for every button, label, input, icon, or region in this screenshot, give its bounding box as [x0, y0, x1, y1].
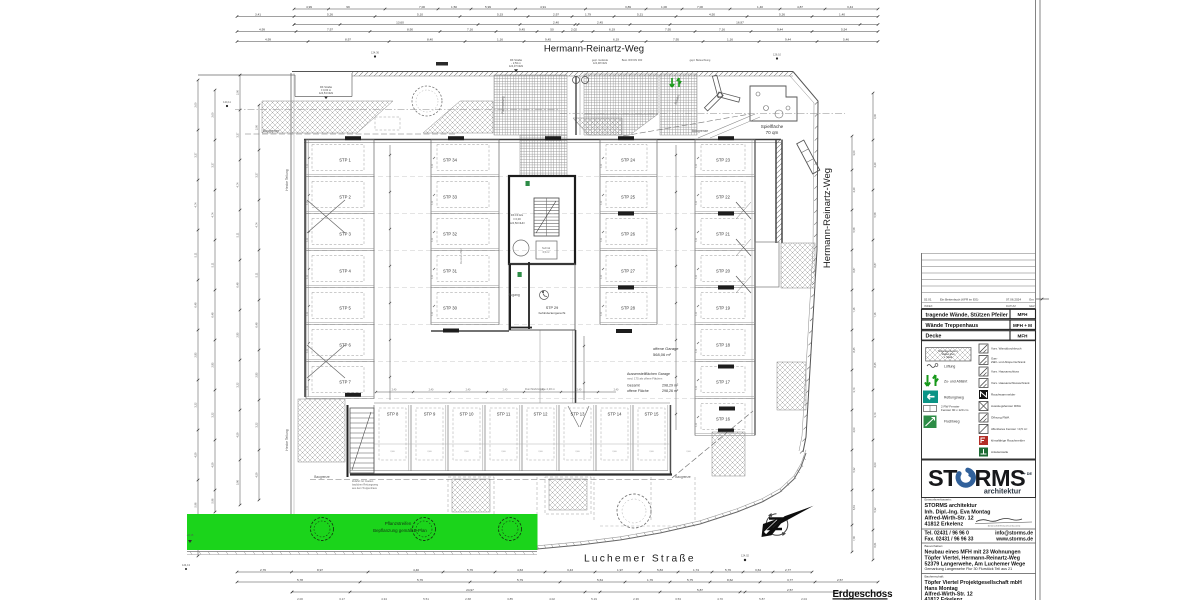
svg-text:Pflanzstreifen: Pflanzstreifen	[385, 521, 412, 526]
svg-text:2,45: 2,45	[597, 20, 603, 24]
svg-text:2,40: 2,40	[577, 389, 582, 392]
svg-text:DK FF EG: DK FF EG	[511, 213, 523, 217]
svg-text:3,41: 3,41	[255, 12, 261, 16]
svg-text:3,37: 3,37	[194, 152, 198, 158]
svg-text:STP 23: STP 23	[716, 158, 731, 163]
svg-text:9,44: 9,44	[777, 27, 783, 31]
svg-text:4,99: 4,99	[306, 5, 312, 9]
svg-text:6,48: 6,48	[255, 322, 259, 328]
svg-text:MFH + M: MFH + M	[1013, 323, 1032, 328]
svg-text:4,74: 4,74	[211, 212, 215, 218]
svg-text:STP 21: STP 21	[716, 232, 731, 237]
svg-text:2,76: 2,76	[260, 568, 266, 572]
svg-text:Gesamt: Gesamt	[627, 384, 640, 388]
svg-text:2,02: 2,02	[571, 27, 577, 31]
svg-text:STP 10: STP 10	[460, 412, 475, 417]
svg-text:Hecke Teilung: Hecke Teilung	[285, 169, 289, 190]
svg-text:STP 27: STP 27	[621, 269, 636, 274]
svg-text:tragende Wände, Stützen Pfeile: tragende Wände, Stützen Pfeiler	[926, 312, 1009, 318]
svg-text:Fluchtweg: Fluchtweg	[944, 420, 960, 424]
svg-text:5,96: 5,96	[236, 479, 240, 485]
svg-text:Hermann-Reinartz-Weg: Hermann-Reinartz-Weg	[822, 168, 833, 268]
svg-text:MFH: MFH	[1018, 334, 1029, 339]
svg-text:STP 33: STP 33	[443, 195, 458, 200]
svg-text:8,45: 8,45	[852, 347, 856, 353]
svg-text:STP 14: STP 14	[608, 412, 623, 417]
svg-text:8,97: 8,97	[345, 37, 351, 41]
svg-text:2,40: 2,40	[466, 389, 471, 392]
svg-text:Zugang: Zugang	[508, 293, 520, 297]
svg-text:2,40: 2,40	[429, 389, 434, 392]
svg-text:aus dem Treppenhaus: aus dem Treppenhaus	[352, 487, 378, 490]
svg-text:5,11: 5,11	[194, 252, 198, 257]
svg-text:5,96: 5,96	[211, 498, 215, 504]
svg-text:7,16: 7,16	[719, 27, 725, 31]
svg-text:STP 7: STP 7	[339, 380, 351, 385]
svg-text:Zähl- und Absperrschrank: Zähl- und Absperrschrank	[991, 360, 1026, 364]
svg-text:gepl. Beleuchtung: gepl. Beleuchtung	[690, 58, 711, 62]
svg-text:STP 26: STP 26	[621, 232, 636, 237]
svg-text:STP 1: STP 1	[339, 158, 351, 163]
svg-text:126,10: 126,10	[773, 53, 781, 57]
svg-text:Fax. 02431 / 96 96 33: Fax. 02431 / 96 96 33	[925, 536, 974, 542]
svg-text:2,57: 2,57	[787, 588, 793, 592]
svg-text:INDEX: INDEX	[924, 304, 933, 308]
svg-text:8,40: 8,40	[427, 37, 433, 41]
svg-text:STP 20: STP 20	[716, 269, 731, 274]
svg-text:5,58: 5,58	[852, 227, 856, 233]
svg-text:8,90: 8,90	[407, 27, 413, 31]
svg-text:STP 24: STP 24	[621, 158, 636, 163]
svg-text:3,74: 3,74	[852, 387, 856, 393]
svg-text:3,74: 3,74	[873, 412, 877, 418]
svg-text:Baugrenze: Baugrenze	[263, 129, 280, 133]
svg-text:STP 22: STP 22	[716, 195, 731, 200]
svg-text:Rauchwarnmelder: Rauchwarnmelder	[991, 393, 1015, 397]
svg-text:2,00: 2,00	[194, 102, 198, 108]
svg-text:2,85: 2,85	[236, 332, 240, 338]
svg-text:5,11: 5,11	[211, 262, 215, 267]
svg-text:Technik: Technik	[542, 247, 551, 250]
svg-text:offene Garage: offene Garage	[653, 346, 679, 351]
svg-text:6,61: 6,61	[852, 504, 856, 510]
svg-text:13,60: 13,60	[396, 20, 404, 24]
svg-text:STP 8: STP 8	[387, 412, 399, 417]
svg-text:5,58: 5,58	[873, 212, 877, 218]
svg-text:6,48: 6,48	[211, 312, 215, 318]
svg-text:Tiefgaragendecke lt.: Tiefgaragendecke lt.	[938, 350, 959, 353]
svg-text:5,46: 5,46	[843, 37, 849, 41]
svg-text:24,97: 24,97	[466, 588, 474, 592]
svg-text:Best. RW DN 300: Best. RW DN 300	[622, 58, 643, 62]
svg-text:7,16: 7,16	[873, 312, 877, 318]
svg-text:124,36: 124,36	[371, 51, 379, 55]
svg-text:Alfred-Wirth-Str. 12: Alfred-Wirth-Str. 12	[925, 516, 974, 522]
svg-text:STP 17: STP 17	[716, 380, 731, 385]
svg-text:5,78: 5,78	[297, 578, 303, 582]
svg-text:Baugrenze: Baugrenze	[692, 129, 709, 133]
svg-text:4,91: 4,91	[540, 5, 546, 9]
svg-text:2,85: 2,85	[255, 372, 259, 378]
svg-text:4,59: 4,59	[236, 432, 240, 438]
svg-text:± 0,00: ± 0,00	[513, 217, 521, 221]
svg-text:STP 3: STP 3	[339, 232, 351, 237]
svg-text:ST: ST	[928, 465, 958, 491]
svg-text:DATUM: DATUM	[1006, 304, 1016, 308]
svg-text:16,97: 16,97	[736, 20, 744, 24]
svg-text:3,22: 3,22	[211, 412, 215, 418]
svg-text:STP 5: STP 5	[339, 306, 351, 311]
svg-text:8,97: 8,97	[317, 568, 323, 572]
svg-text:2,00: 2,00	[255, 124, 259, 130]
svg-text:5,83: 5,83	[657, 568, 663, 572]
svg-text:Hecke Teilung: Hecke Teilung	[285, 429, 289, 450]
svg-text:5,64: 5,64	[597, 578, 603, 582]
svg-text:2,85: 2,85	[211, 362, 215, 368]
svg-text:5,33: 5,33	[497, 12, 503, 16]
svg-text:Ein Bettenbuch (KFR im EG): Ein Bettenbuch (KFR im EG)	[940, 298, 978, 302]
svg-text:298,29 m²: 298,29 m²	[662, 384, 679, 388]
svg-text:4,03: 4,03	[852, 427, 856, 433]
svg-text:1,97: 1,97	[617, 568, 623, 572]
svg-text:3,22: 3,22	[255, 422, 259, 428]
svg-text:Luchemer Straße: Luchemer Straße	[584, 554, 696, 565]
svg-text:3,37: 3,37	[255, 172, 259, 178]
svg-text:6,48: 6,48	[236, 282, 240, 288]
svg-text:STP 29: STP 29	[546, 306, 559, 310]
svg-text:2,40: 2,40	[553, 20, 559, 24]
svg-text:9,45: 9,45	[519, 27, 525, 31]
svg-text:STP 16: STP 16	[716, 417, 731, 422]
svg-text:3,37: 3,37	[211, 162, 215, 168]
svg-text:5,96: 5,96	[194, 502, 198, 508]
svg-text:offene Fläche: offene Fläche	[627, 389, 649, 393]
svg-text:5,87: 5,87	[697, 588, 703, 592]
svg-text:4,74: 4,74	[236, 182, 240, 188]
svg-text:2,57: 2,57	[837, 578, 843, 582]
svg-text:2,85: 2,85	[194, 352, 198, 358]
svg-text:STP 25: STP 25	[621, 195, 636, 200]
svg-text:MFH: MFH	[1018, 312, 1029, 317]
svg-text:STP 12: STP 12	[534, 412, 549, 417]
svg-text:5,10: 5,10	[417, 12, 423, 16]
svg-text:STP 18: STP 18	[716, 343, 731, 348]
svg-text:9,45: 9,45	[545, 37, 551, 41]
svg-text:STP 30: STP 30	[443, 306, 458, 311]
svg-text:1,00: 1,00	[661, 5, 667, 9]
svg-text:7,00: 7,00	[419, 5, 425, 9]
svg-text:5,54: 5,54	[841, 27, 847, 31]
svg-text:5,75: 5,75	[687, 578, 693, 582]
svg-text:med. 175 als offene Flächen: med. 175 als offene Flächen	[627, 377, 663, 381]
svg-text:Baugrenze: Baugrenze	[675, 475, 691, 479]
svg-text:6,19: 6,19	[613, 37, 619, 41]
svg-text:3,77: 3,77	[787, 578, 793, 582]
svg-text:2,97: 2,97	[553, 12, 559, 16]
svg-text:STP 13: STP 13	[571, 412, 586, 417]
svg-text:4,29: 4,29	[873, 162, 877, 168]
svg-text:3,22: 3,22	[236, 382, 240, 388]
svg-text:5,32: 5,32	[873, 507, 877, 513]
svg-text:70 qm: 70 qm	[766, 130, 779, 135]
svg-text:4,74: 4,74	[194, 202, 198, 208]
svg-text:5,76: 5,76	[417, 578, 423, 582]
svg-text:Fenster 90 x 120 cm: Fenster 90 x 120 cm	[941, 408, 969, 412]
svg-text:7,95: 7,95	[665, 27, 671, 31]
svg-text:8,62: 8,62	[727, 578, 733, 582]
svg-text:STP 9: STP 9	[424, 412, 436, 417]
svg-text:Lüftung: Lüftung	[944, 365, 955, 369]
svg-text:6,87: 6,87	[852, 267, 856, 273]
svg-text:architektur: architektur	[984, 487, 1021, 496]
svg-text:Bauherrschaft:: Bauherrschaft:	[925, 575, 945, 579]
svg-text:4,29: 4,29	[852, 187, 856, 193]
svg-text:behindertengerecht: behindertengerecht	[539, 311, 566, 315]
svg-text:Bepflanzung gemäß B-Plan: Bepflanzung gemäß B-Plan	[373, 528, 427, 533]
svg-text:3,00: 3,00	[852, 150, 856, 156]
svg-text:öffenbares Fenster >0,5 m²: öffenbares Fenster >0,5 m²	[991, 427, 1027, 431]
svg-text:Statiker über: Statiker über	[941, 353, 954, 356]
svg-text:124,98 NHN: 124,98 NHN	[593, 61, 607, 65]
svg-text:Gemarkung Langerwehe Flur 30: Gemarkung Langerwehe Flur 30 Flurstück T…	[925, 567, 1013, 571]
svg-text:5,11: 5,11	[236, 232, 240, 237]
svg-text:STP 6: STP 6	[339, 343, 351, 348]
svg-text:6,19: 6,19	[609, 27, 615, 31]
svg-text:4,87: 4,87	[797, 5, 803, 9]
svg-text:(Unterschrift Entwurfsverfasse: (Unterschrift Entwurfsverfasserin)	[988, 525, 1021, 528]
svg-text:Vors. Hausanschlussschrank: Vors. Hausanschlussschrank	[991, 381, 1030, 385]
svg-text:2,77: 2,77	[785, 568, 791, 572]
svg-text:Öffnung RWA: Öffnung RWA	[991, 416, 1009, 420]
svg-text:Zu- und Abfahrt: Zu- und Abfahrt	[944, 380, 967, 384]
svg-text:STP 31: STP 31	[443, 269, 458, 274]
svg-text:124,11: 124,11	[223, 100, 231, 104]
svg-text:7,16: 7,16	[467, 27, 473, 31]
svg-text:9,44: 9,44	[785, 37, 791, 41]
svg-text:6,87: 6,87	[873, 262, 877, 268]
svg-text:4,99: 4,99	[265, 37, 271, 41]
svg-text:Vors. Hausanschluss: Vors. Hausanschluss	[991, 370, 1020, 374]
svg-text:1,16: 1,16	[727, 37, 733, 41]
svg-text:4,59: 4,59	[194, 452, 198, 458]
svg-text:1,40: 1,40	[757, 5, 763, 9]
svg-text:STP 28: STP 28	[621, 306, 636, 311]
svg-text:STORMS architektur: STORMS architektur	[925, 503, 978, 509]
svg-text:124,50 NHN: 124,50 NHN	[510, 221, 525, 225]
svg-text:568,06 m²: 568,06 m²	[653, 352, 672, 357]
svg-text:6,5 m²: 6,5 m²	[543, 251, 550, 254]
svg-text:Entwurfsverfasserin:: Entwurfsverfasserin:	[925, 498, 952, 502]
svg-text:1,74: 1,74	[693, 568, 699, 572]
svg-text:Wände Treppenhaus: Wände Treppenhaus	[926, 323, 979, 329]
svg-text:1,76: 1,76	[647, 578, 653, 582]
svg-text:1,50: 1,50	[451, 5, 457, 9]
svg-text:STP 34: STP 34	[443, 158, 458, 163]
svg-text:3,22: 3,22	[194, 402, 198, 408]
svg-text:4,59: 4,59	[211, 462, 215, 468]
svg-text:2,40: 2,40	[503, 389, 508, 392]
svg-text:STP 15: STP 15	[645, 412, 660, 417]
svg-text:3,89: 3,89	[625, 5, 631, 9]
svg-text:124,02: 124,02	[741, 554, 749, 558]
svg-text:STP 2: STP 2	[339, 195, 351, 200]
svg-text:3,44: 3,44	[847, 5, 853, 9]
svg-text:1,16: 1,16	[497, 37, 503, 41]
svg-text:124,07 NHN: 124,07 NHN	[509, 64, 523, 68]
svg-text:50: 50	[550, 27, 554, 31]
svg-text:Aussenstellflächen Garage: Aussenstellflächen Garage	[627, 372, 670, 376]
svg-text:1,79: 1,79	[585, 12, 591, 16]
svg-text:4,99: 4,99	[259, 27, 265, 31]
svg-text:41812 Erkelenz: 41812 Erkelenz	[925, 522, 964, 528]
svg-text:07.06.2024: 07.06.2024	[1006, 298, 1021, 302]
svg-text:Spielfläche: Spielfläche	[761, 124, 784, 129]
svg-text:4,03: 4,03	[873, 462, 877, 468]
svg-text:5,76: 5,76	[725, 568, 731, 572]
svg-text:STP 19: STP 19	[716, 306, 731, 311]
svg-text:5,11: 5,11	[255, 272, 259, 277]
svg-text:6,61: 6,61	[873, 542, 877, 548]
svg-text:298,26 m²: 298,26 m²	[662, 389, 679, 393]
svg-text:GEZ: GEZ	[1029, 304, 1035, 308]
svg-text:5,31: 5,31	[637, 12, 643, 16]
svg-text:5,99: 5,99	[485, 5, 491, 9]
svg-text:99: 99	[346, 5, 350, 9]
svg-text:8,45: 8,45	[873, 362, 877, 368]
svg-text:3,00: 3,00	[873, 113, 877, 119]
svg-text:3,64: 3,64	[755, 568, 761, 572]
svg-text:www.storms.de: www.storms.de	[995, 536, 1033, 542]
svg-text:Hermann-Reinartz-Weg: Hermann-Reinartz-Weg	[544, 44, 644, 55]
svg-text:STP 4: STP 4	[339, 269, 351, 274]
svg-text:3,37: 3,37	[236, 132, 240, 138]
svg-text:3,43: 3,43	[567, 568, 573, 572]
svg-text:124,13: 124,13	[182, 563, 190, 567]
svg-text:4,59: 4,59	[255, 472, 259, 478]
svg-text:7,00: 7,00	[697, 5, 703, 9]
svg-text:5,26: 5,26	[779, 12, 785, 16]
svg-text:Inh. Dipl.-Ing. Eva Montag: Inh. Dipl.-Ing. Eva Montag	[925, 509, 991, 515]
svg-text:+0,15: +0,15	[187, 533, 194, 537]
svg-text:2,00: 2,00	[236, 89, 240, 95]
svg-text:Vors. Wanddurchbruch: Vors. Wanddurchbruch	[991, 347, 1022, 351]
svg-text:Fahrradweg: Fahrradweg	[501, 96, 505, 113]
svg-text:2,40: 2,40	[392, 389, 397, 392]
svg-text:Decke offen: Decke offen	[459, 248, 463, 264]
svg-text:5,79: 5,79	[517, 578, 523, 582]
svg-text:4,63: 4,63	[517, 568, 523, 572]
svg-text:s. Statik: s. Statik	[944, 356, 953, 359]
svg-text:7,90: 7,90	[852, 535, 856, 541]
svg-text:Bauvorhaben:: Bauvorhaben:	[925, 544, 944, 548]
svg-text:4,40: 4,40	[413, 568, 419, 572]
svg-text:4,74: 4,74	[255, 222, 259, 228]
svg-text:Rettungsweg: Rettungsweg	[944, 396, 964, 400]
svg-text:4,50: 4,50	[709, 12, 715, 16]
svg-text:5,32: 5,32	[852, 467, 856, 473]
svg-text:Anleiterstelle: Anleiterstelle	[991, 450, 1009, 454]
svg-text:7,97: 7,97	[327, 27, 333, 31]
svg-text:STP 32: STP 32	[443, 232, 458, 237]
svg-text:Durchfahrtshöhe 2,30 m: Durchfahrtshöhe 2,30 m	[525, 387, 556, 391]
svg-text:Baugrenze: Baugrenze	[314, 475, 330, 479]
svg-text:2,00: 2,00	[211, 112, 215, 118]
svg-text:1,40: 1,40	[839, 12, 845, 16]
svg-text:124,53 NHN: 124,53 NHN	[319, 91, 333, 95]
svg-text:6,48: 6,48	[194, 302, 198, 308]
svg-text:klimafähige Rauchmelder: klimafähige Rauchmelder	[991, 439, 1025, 443]
svg-text:Gm: Gm	[1029, 298, 1034, 302]
svg-text:2,40: 2,40	[614, 389, 619, 392]
svg-text:02.01: 02.01	[924, 298, 932, 302]
svg-text:Decke: Decke	[926, 334, 942, 340]
svg-text:5,26: 5,26	[327, 12, 333, 16]
svg-text:+ DE: + DE	[1024, 472, 1033, 476]
svg-text:7,16: 7,16	[852, 307, 856, 313]
svg-text:7,95: 7,95	[673, 37, 679, 41]
svg-text:5,76: 5,76	[467, 568, 473, 572]
svg-text:STP 11: STP 11	[497, 412, 511, 417]
svg-text:Ausstiegsfenster RWA: Ausstiegsfenster RWA	[991, 404, 1021, 408]
